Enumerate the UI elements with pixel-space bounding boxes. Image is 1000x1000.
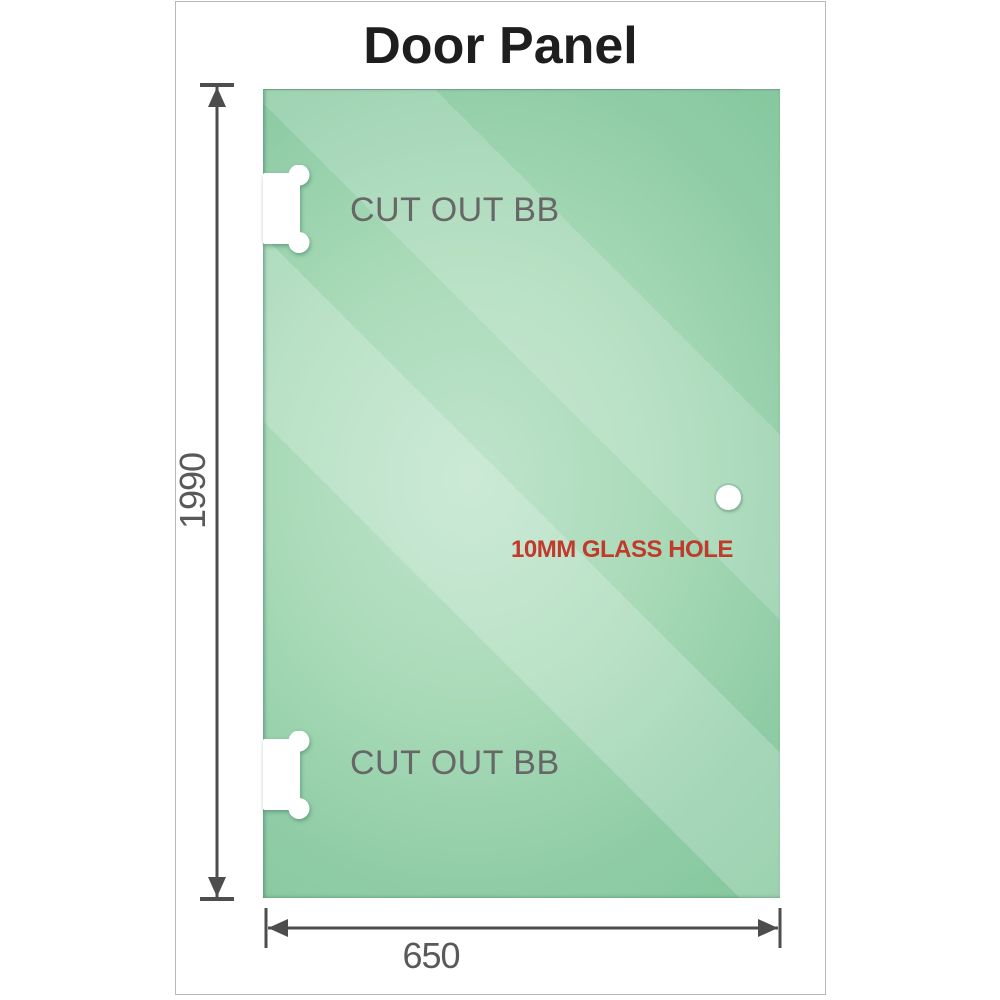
arrowhead-right-icon xyxy=(758,919,778,937)
hinge-cutout-shape-icon xyxy=(263,731,311,823)
diagram-frame: Door Panel CUT OUT BB CUT OUT BB 10MM GL… xyxy=(175,1,826,995)
cutout-top-label: CUT OUT BB xyxy=(350,191,560,229)
hinge-cutout-bottom xyxy=(263,731,311,823)
hinge-cutout-top xyxy=(263,165,311,257)
arrowhead-down-icon xyxy=(208,877,226,897)
page-title: Door Panel xyxy=(176,16,825,76)
arrowhead-up-icon xyxy=(208,87,226,107)
width-dimension-value: 650 xyxy=(391,937,471,975)
glass-hole xyxy=(716,485,741,510)
width-dimension-arrow xyxy=(256,906,790,951)
hinge-cutout-shape-icon xyxy=(263,165,311,257)
arrowhead-left-icon xyxy=(268,919,288,937)
glass-hole-label: 10MM GLASS HOLE xyxy=(511,536,711,564)
cutout-bottom-label: CUT OUT BB xyxy=(350,744,560,782)
height-dimension-value: 1990 xyxy=(174,431,212,551)
